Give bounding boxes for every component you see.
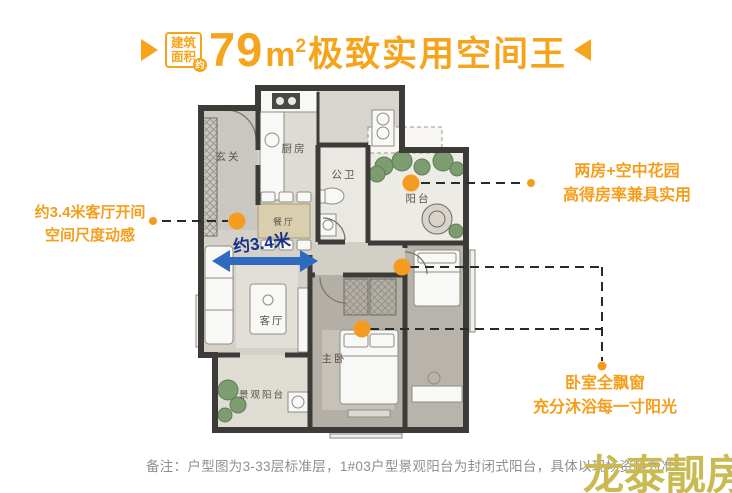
annotation-sky-garden: 两房+空中花园 高得房率兼具实用 bbox=[544, 160, 710, 208]
master-label: 主卧 bbox=[322, 352, 347, 365]
dining-label: 餐厅 bbox=[273, 216, 295, 227]
page: 建筑 面积 约 79 m 2 极致实用空间王 bbox=[0, 0, 732, 493]
annotation-line: 高得房率兼具实用 bbox=[544, 184, 710, 208]
living-label: 客厅 bbox=[260, 314, 285, 327]
watermark: 龙泰靓房 bbox=[583, 441, 732, 493]
annotation-line: 两房+空中花园 bbox=[544, 160, 710, 184]
annotation-bay-window: 卧室全飘窗 充分沐浴每一寸阳光 bbox=[514, 372, 696, 420]
entry-label: 玄关 bbox=[216, 150, 241, 163]
kitchen-label: 厨房 bbox=[282, 142, 307, 155]
view-balcony-label: 景观阳台 bbox=[239, 389, 285, 401]
bath-label: 公卫 bbox=[332, 169, 357, 181]
annotation-line: 充分沐浴每一寸阳光 bbox=[514, 396, 696, 420]
annotation-line: 卧室全飘窗 bbox=[514, 372, 696, 396]
annotation-line: 空间尺度动感 bbox=[26, 225, 154, 248]
sky-balcony-label: 阳台 bbox=[406, 192, 431, 205]
annotation-living-width: 约3.4米客厅开间 空间尺度动感 bbox=[26, 202, 154, 247]
annotation-line: 约3.4米客厅开间 bbox=[26, 202, 154, 225]
